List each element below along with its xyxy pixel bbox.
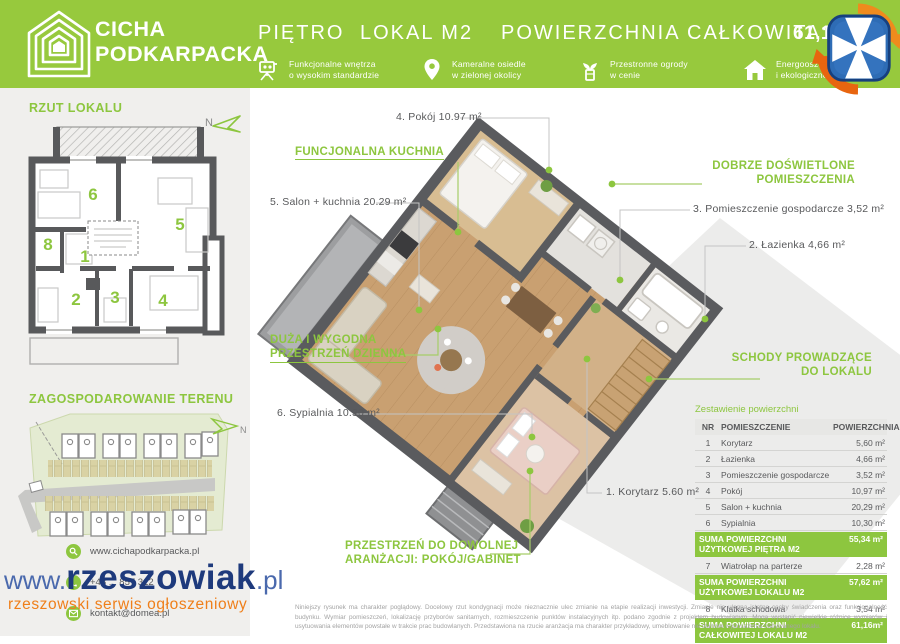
- header-floor-label: PIĘTRO: [258, 22, 344, 45]
- house-icon: [742, 57, 768, 83]
- contact-website: www.cichapodkarpacka.pl: [66, 544, 199, 559]
- feature-location: Kameralne osiedlew zielonej okolicy: [420, 55, 526, 85]
- table-summary-row: SUMA POWIERZCHNI UŻYTKOWEJ LOKALU M257,6…: [695, 575, 887, 600]
- watermark-tld: .pl: [256, 565, 283, 595]
- header-unit-label: LOKAL M2: [360, 22, 473, 45]
- table-row: 1Korytarz5,60 m²: [695, 435, 887, 451]
- search-icon: [66, 544, 81, 559]
- table-row: 3Pomieszczenie gospodarcze3,52 m²: [695, 467, 887, 483]
- green-label-text: FUNCJONALNA KUCHNIA: [295, 146, 444, 160]
- feature-text: Przestronne ogrody: [610, 59, 688, 70]
- sidebar: RZUT LOKALU N: [0, 88, 250, 636]
- watermark-www: www.: [4, 565, 66, 595]
- label-sypialnia: 6. Sypialnia 10.30 m²: [277, 407, 380, 419]
- room-number-8: 8: [43, 235, 52, 255]
- green-label-text: DUŻA I WYGODNA: [270, 334, 406, 348]
- header-bar: CICHA PODKARPACKA PIĘTRO LOKAL M2 POWIER…: [0, 0, 900, 88]
- table-row: 2Łazienka4,66 m²: [695, 451, 887, 467]
- feature-text: Funkcjonalne wnętrza: [289, 59, 379, 70]
- room-number-4: 4: [158, 291, 167, 311]
- site-plan-title: ZAGOSPODAROWANIE TERENU: [29, 392, 233, 406]
- feature-text: Kameralne osiedle: [452, 59, 526, 70]
- room-number-1: 1: [80, 247, 89, 267]
- label-pokoj: 4. Pokój 10.97 m²: [396, 111, 482, 123]
- svg-text:N: N: [240, 425, 247, 435]
- disclaimer-text: Niniejszy rysunek ma charakter poglądowy…: [295, 603, 887, 632]
- brand-logo-icon: [26, 9, 92, 79]
- green-label-text: PRZESTRZEŃ DO DOWOLNEJ: [345, 540, 495, 554]
- col-name: POMIESZCZENIE: [721, 422, 833, 432]
- website-text: www.cichapodkarpacka.pl: [90, 546, 199, 557]
- feature-text: w zielonej okolicy: [452, 70, 526, 81]
- header-area-label: POWIERZCHNIA CAŁKOWITA:: [501, 22, 829, 45]
- watermark-subtitle: rzeszowski serwis ogłoszeniowy: [8, 596, 247, 614]
- site-plan: N: [18, 414, 247, 536]
- label-salon: 5. Salon + kuchnia 20.29 m²: [270, 196, 406, 208]
- table-summary-row: SUMA POWIERZCHNI UŻYTKOWEJ PIĘTRA M255,3…: [695, 532, 887, 557]
- table-row: 5Salon + kuchnia20,29 m²: [695, 499, 887, 515]
- table-title: Zestawienie powierzchni: [695, 404, 887, 415]
- label-korytarz: 1. Korytarz 5.60 m²: [606, 486, 699, 498]
- label-lazienka: 2. Łazienka 4,66 m²: [749, 239, 845, 251]
- brand-line2: PODKARPACKA: [95, 42, 269, 67]
- green-label-text: DOBRZE DOŚWIETLONE: [705, 160, 855, 174]
- room-number-3: 3: [110, 288, 119, 308]
- green-label-text: DO LOKALU: [722, 366, 872, 380]
- label-aranzacja: PRZESTRZEŃ DO DOWOLNEJ ARANŻACJI: POKÓJ/…: [345, 540, 495, 567]
- feature-text: w cenie: [610, 70, 688, 81]
- label-gospodarcze: 3. Pomieszczenie gospodarcze 3,52 m²: [693, 203, 884, 215]
- label-przestrzen-dzienna: DUŻA I WYGODNA PRZESTRZEŃ DZIENNA: [270, 334, 406, 363]
- table-row: 7Wiatrołap na parterze2,28 m²: [695, 558, 887, 574]
- table-row: 6Sypialnia10,30 m²: [695, 515, 887, 531]
- brand-name: CICHA PODKARPACKA: [95, 17, 269, 67]
- watermark-name: rzeszowiak: [66, 558, 256, 597]
- plant-icon: [578, 57, 602, 83]
- green-label-text: SCHODY PROWADZĄCE: [722, 352, 872, 366]
- green-label-text: POMIESZCZENIA: [705, 174, 855, 188]
- label-schody: SCHODY PROWADZĄCE DO LOKALU: [722, 352, 872, 379]
- feature-text: o wysokim standardzie: [289, 70, 379, 81]
- room-number-2: 2: [71, 290, 80, 310]
- col-nr: NR: [695, 422, 721, 432]
- svg-text:N: N: [205, 117, 213, 129]
- green-label-text: ARANŻACJI: POKÓJ/GABINET: [345, 554, 495, 568]
- feature-interiors: Funkcjonalne wnętrzao wysokim standardzi…: [255, 55, 379, 85]
- room-number-5: 5: [175, 215, 184, 235]
- green-label-text: PRZESTRZEŃ DZIENNA: [270, 348, 406, 364]
- table-header-row: NR POMIESZCZENIE POWIERZCHNIA: [695, 419, 887, 435]
- room-number-6: 6: [88, 185, 97, 205]
- feature-gardens: Przestronne ogrodyw cenie: [578, 55, 688, 85]
- label-funkcjonalna-kuchnia: FUNCJONALNA KUCHNIA: [295, 146, 444, 160]
- location-pin-icon: [420, 57, 444, 83]
- label-doswietlone: DOBRZE DOŚWIETLONE POMIESZCZENIA: [705, 160, 855, 187]
- col-area: POWIERZCHNIA: [833, 422, 887, 432]
- table-row: 4Pokój10,97 m²: [695, 483, 887, 499]
- brand-line1: CICHA: [95, 17, 269, 42]
- north-arrow-icon: N: [205, 116, 240, 132]
- projector-icon: [255, 57, 281, 83]
- rzeszowiak-badge-icon: [812, 2, 900, 96]
